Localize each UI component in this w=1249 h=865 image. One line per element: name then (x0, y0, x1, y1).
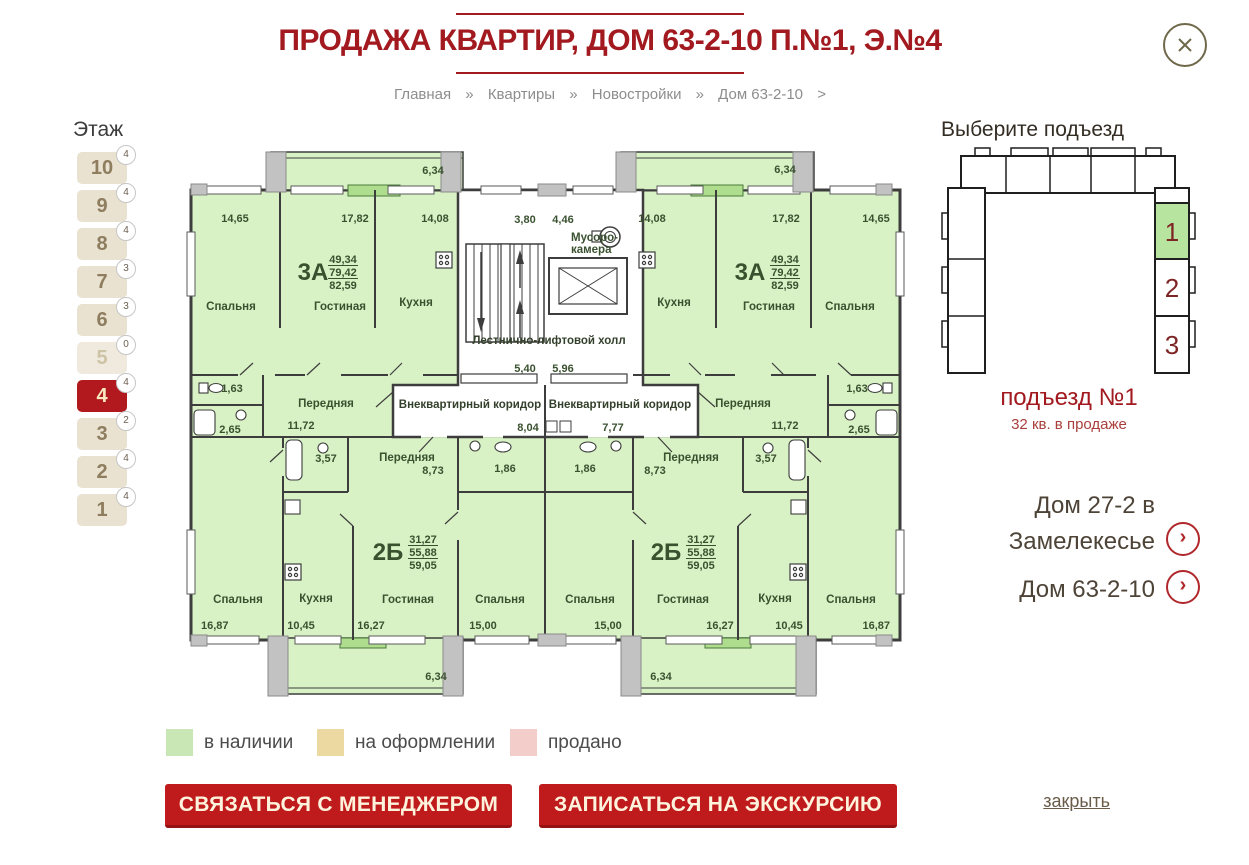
floor-number: 8 (96, 233, 107, 255)
chevron-right-icon: › (1180, 526, 1187, 549)
legend-available-label: в наличии (204, 732, 293, 754)
floor-count-badge: 3 (116, 297, 136, 317)
apartment-3a-upper-left[interactable] (191, 190, 458, 437)
breadcrumb-separator: » (569, 86, 577, 103)
breadcrumb-newbuildings[interactable]: Новостройки (592, 86, 682, 103)
floor-number: 5 (96, 347, 107, 369)
entrance-heading: Выберите подъезд (941, 118, 1124, 142)
floor-button-3[interactable]: 32 (77, 418, 127, 450)
apartment-3a-upper-right[interactable] (633, 190, 900, 437)
plan-label: 6,34 (425, 671, 447, 683)
breadcrumb-separator: » (465, 86, 473, 103)
plan-label: камера (571, 244, 612, 256)
floor-number: 6 (96, 309, 107, 331)
floor-list: 104948473635044322414 (77, 152, 127, 532)
floor-count-badge: 4 (116, 221, 136, 241)
breadcrumb-flats[interactable]: Квартиры (488, 86, 555, 103)
apartment-sales-page: ПРОДАЖА КВАРТИР, ДОМ 63-2-10 П.№1, Э.№4 … (0, 0, 1249, 865)
close-icon (1175, 35, 1195, 55)
close-button[interactable] (1163, 23, 1207, 67)
plan-label: 4,46 (552, 214, 573, 226)
floor-button-1[interactable]: 14 (77, 494, 127, 526)
breadcrumb-house[interactable]: Дом 63-2-10 (718, 86, 803, 103)
title-rule-bottom (456, 72, 744, 74)
book-tour-button[interactable]: ЗАПИСАТЬСЯ НА ЭКСКУРСИЮ (539, 784, 897, 828)
legend-processing-label: на оформлении (355, 732, 495, 754)
title-rule-top (456, 13, 744, 15)
floor-count-badge: 3 (116, 259, 136, 279)
plan-label: 6,34 (650, 671, 672, 683)
apartment-2b-lower-right[interactable] (545, 437, 900, 640)
plan-label: 5,40 (514, 363, 535, 375)
chevron-right-icon: › (1180, 574, 1187, 597)
link-house-27-2-line2[interactable]: Замелекесье (1009, 528, 1155, 556)
legend-available-swatch (166, 729, 193, 756)
legend-available: в наличии (166, 729, 293, 756)
link-house-27-2-arrow[interactable]: › (1166, 522, 1200, 556)
plan-label: 8,04 (517, 422, 539, 434)
floor-count-badge: 4 (116, 487, 136, 507)
floor-button-5[interactable]: 50 (77, 342, 127, 374)
floor-count-badge: 4 (116, 449, 136, 469)
floor-count-badge: 4 (116, 183, 136, 203)
plan-label: 3,80 (514, 214, 535, 226)
hall-partition (461, 374, 537, 383)
panel-box (560, 421, 571, 432)
page-title: ПРОДАЖА КВАРТИР, ДОМ 63-2-10 П.№1, Э.№4 (180, 24, 1040, 58)
floor-number: 7 (96, 271, 107, 293)
floor-number: 3 (96, 423, 107, 445)
panel-box (546, 421, 557, 432)
floors-heading: Этаж (73, 118, 123, 142)
contact-manager-button[interactable]: СВЯЗАТЬСЯ С МЕНЕДЖЕРОМ (165, 784, 512, 828)
floor-button-6[interactable]: 63 (77, 304, 127, 336)
plan-label: 6,34 (422, 165, 444, 177)
breadcrumb-trailing-arrow: > (817, 86, 826, 103)
plan-label: Лестнично-лифтовой холл (472, 335, 625, 347)
plan-label: 6,34 (774, 164, 796, 176)
floor-button-4[interactable]: 44 (77, 380, 127, 412)
plan-label: 5,96 (552, 363, 573, 375)
floor-button-7[interactable]: 73 (77, 266, 127, 298)
building-top-wing (961, 156, 1175, 193)
link-house-27-2-line1[interactable]: Дом 27-2 в (1035, 492, 1156, 520)
link-house-63-2-10-arrow[interactable]: › (1166, 570, 1200, 604)
floor-number: 2 (96, 461, 107, 483)
floor-number: 1 (96, 499, 107, 521)
entrance-cell-3-label: 3 (1165, 330, 1179, 360)
floor-number: 10 (91, 157, 113, 179)
entrance-cell-2-label: 2 (1165, 273, 1179, 303)
floor-button-9[interactable]: 94 (77, 190, 127, 222)
hall-partition (551, 374, 627, 383)
apartment-2b-lower-left[interactable] (191, 437, 545, 640)
floor-count-badge: 2 (116, 411, 136, 431)
floor-button-8[interactable]: 84 (77, 228, 127, 260)
floor-count-badge: 4 (116, 373, 136, 393)
floor-count-badge: 4 (116, 145, 136, 165)
legend-sold: продано (510, 729, 622, 756)
staircase (466, 244, 544, 342)
building-left-wing (948, 188, 985, 373)
selected-entrance-count: 32 кв. в продаже (941, 416, 1197, 433)
breadcrumb: Главная » Квартиры » Новостройки » Дом 6… (180, 86, 1040, 103)
building-diagram: 1 2 3 (941, 147, 1197, 379)
floor-count-badge: 0 (116, 335, 136, 355)
legend-sold-swatch (510, 729, 537, 756)
floor-number: 9 (96, 195, 107, 217)
plan-label: Мусоро- (571, 232, 618, 244)
close-link[interactable]: закрыть (1043, 791, 1110, 812)
entrance-cell-1-label: 1 (1165, 217, 1179, 247)
legend-processing: на оформлении (317, 729, 495, 756)
legend-sold-label: продано (548, 732, 622, 754)
floor-plan: 6,346,3414,6517,8214,083,804,4614,0817,8… (183, 140, 913, 700)
floor-number: 4 (96, 385, 107, 407)
plan-label: 7,77 (602, 422, 623, 434)
selected-entrance-title: подъезд №1 (941, 384, 1197, 412)
legend-processing-swatch (317, 729, 344, 756)
breadcrumb-separator: » (696, 86, 704, 103)
floor-button-2[interactable]: 24 (77, 456, 127, 488)
link-house-63-2-10[interactable]: Дом 63-2-10 (1019, 576, 1155, 604)
breadcrumb-home[interactable]: Главная (394, 86, 451, 103)
floor-button-10[interactable]: 104 (77, 152, 127, 184)
